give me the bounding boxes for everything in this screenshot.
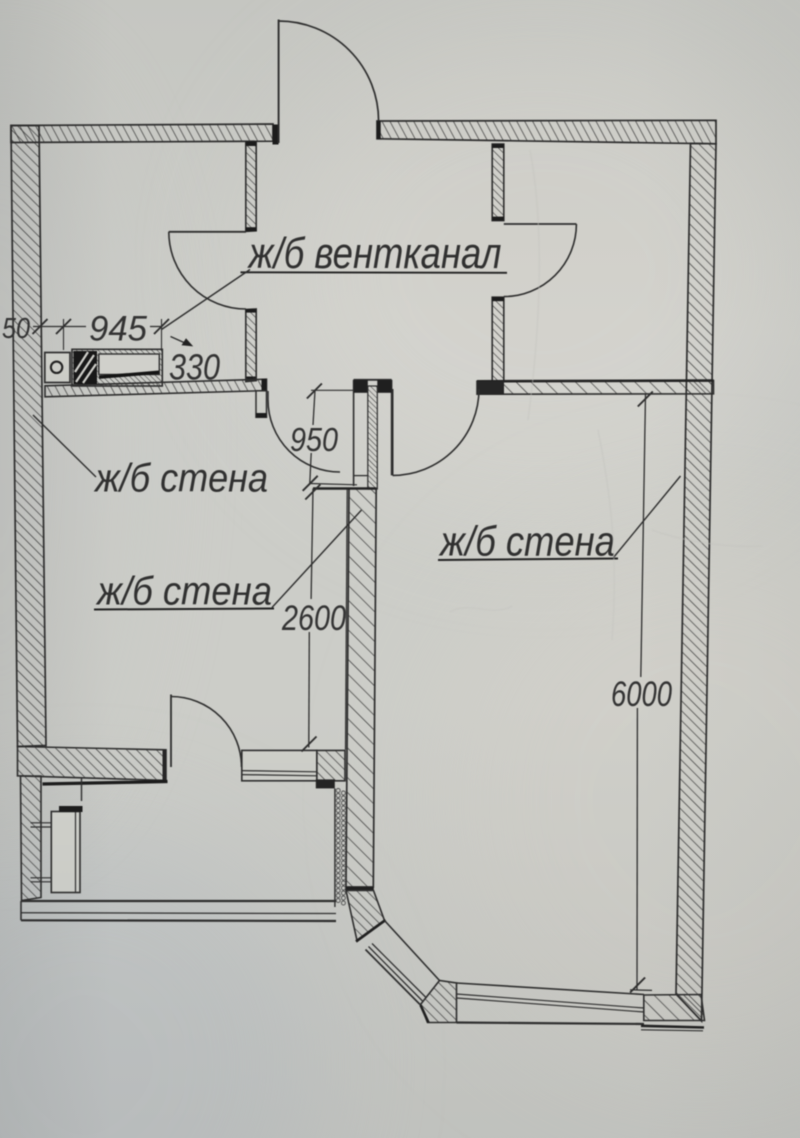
svg-text:ж/б стена: ж/б стена xyxy=(93,457,268,501)
svg-text:945: 945 xyxy=(89,310,148,349)
svg-text:6000: 6000 xyxy=(611,675,672,714)
svg-text:ж/б вентканал: ж/б вентканал xyxy=(247,229,502,278)
svg-text:950: 950 xyxy=(290,421,339,458)
svg-text:2600: 2600 xyxy=(281,599,346,638)
svg-text:50: 50 xyxy=(2,313,30,345)
svg-text:330: 330 xyxy=(169,347,220,388)
svg-text:ж/б стена: ж/б стена xyxy=(438,518,615,565)
svg-text:ж/б стена: ж/б стена xyxy=(95,570,272,614)
